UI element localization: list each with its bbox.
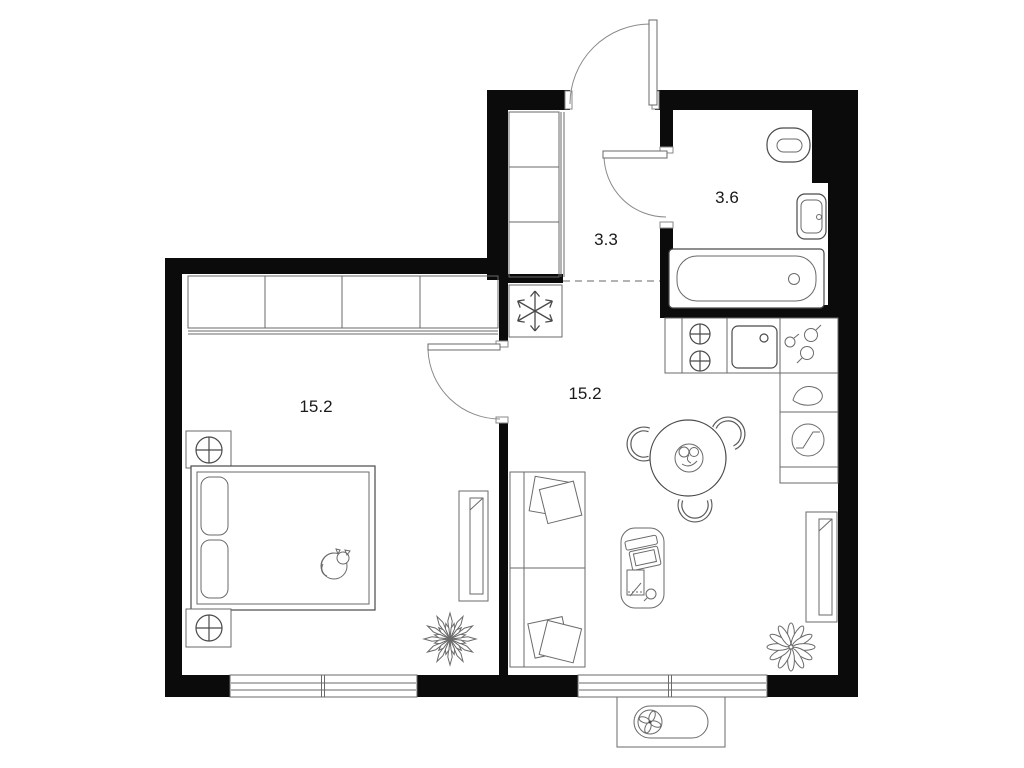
hallway-area-label: 3.3 [594, 230, 618, 249]
pillow [201, 477, 228, 535]
bathtub [669, 249, 824, 308]
entrance-door-leaf [649, 20, 657, 105]
bedroom-wardrobe [188, 276, 498, 334]
plant-icon-living [767, 623, 815, 671]
bathroom-area-label: 3.6 [715, 188, 739, 207]
floor-plan-drawing: 15.2 15.2 3.3 3.6 [0, 0, 1024, 768]
bathroom-sink [797, 194, 826, 239]
bedroom-door-swing-arc [428, 350, 500, 419]
kitchen-sink [732, 326, 777, 368]
water-heater-icon [792, 424, 824, 456]
bathroom-door [603, 147, 673, 228]
pillow [201, 540, 228, 598]
lamp-icon [196, 615, 222, 641]
floor-plan-canvas: 15.2 15.2 3.3 3.6 [0, 0, 1024, 768]
toilet [767, 128, 810, 162]
tv-stand [806, 512, 837, 622]
dining-set [629, 419, 743, 520]
double-bed [191, 466, 375, 610]
bathroom-door-jamb [660, 222, 673, 228]
nightstand-bottom [186, 609, 231, 647]
counter-bottles-icon [785, 325, 821, 363]
ac-outdoor-unit [617, 697, 725, 747]
bathroom-door-swing-arc [604, 155, 666, 217]
bathroom-door-leaf [603, 151, 667, 158]
bedroom-door-leaf [428, 344, 500, 350]
coffee-table [621, 528, 664, 608]
bedroom-window [230, 675, 417, 697]
sofa [510, 472, 585, 667]
bedroom-dresser [459, 491, 488, 601]
dining-table [650, 420, 726, 496]
stove-burner-icon [690, 324, 710, 371]
kettle-icon [793, 387, 822, 406]
bedroom-door [428, 341, 508, 423]
nightstand-top [186, 431, 231, 468]
living-area-label: 15.2 [568, 384, 601, 403]
fan-icon [638, 710, 662, 734]
bedroom-area-label: 15.2 [299, 397, 332, 416]
bedroom-door-jamb [496, 417, 508, 423]
entrance-door-swing-arc [570, 24, 650, 104]
refrigerator [509, 285, 562, 337]
hallway-closet [509, 112, 564, 277]
plant-icon-bedroom [424, 613, 476, 665]
living-window [578, 675, 767, 697]
snowflake-icon [515, 291, 554, 331]
lamp-icon [196, 437, 222, 463]
entrance-door [565, 20, 659, 109]
